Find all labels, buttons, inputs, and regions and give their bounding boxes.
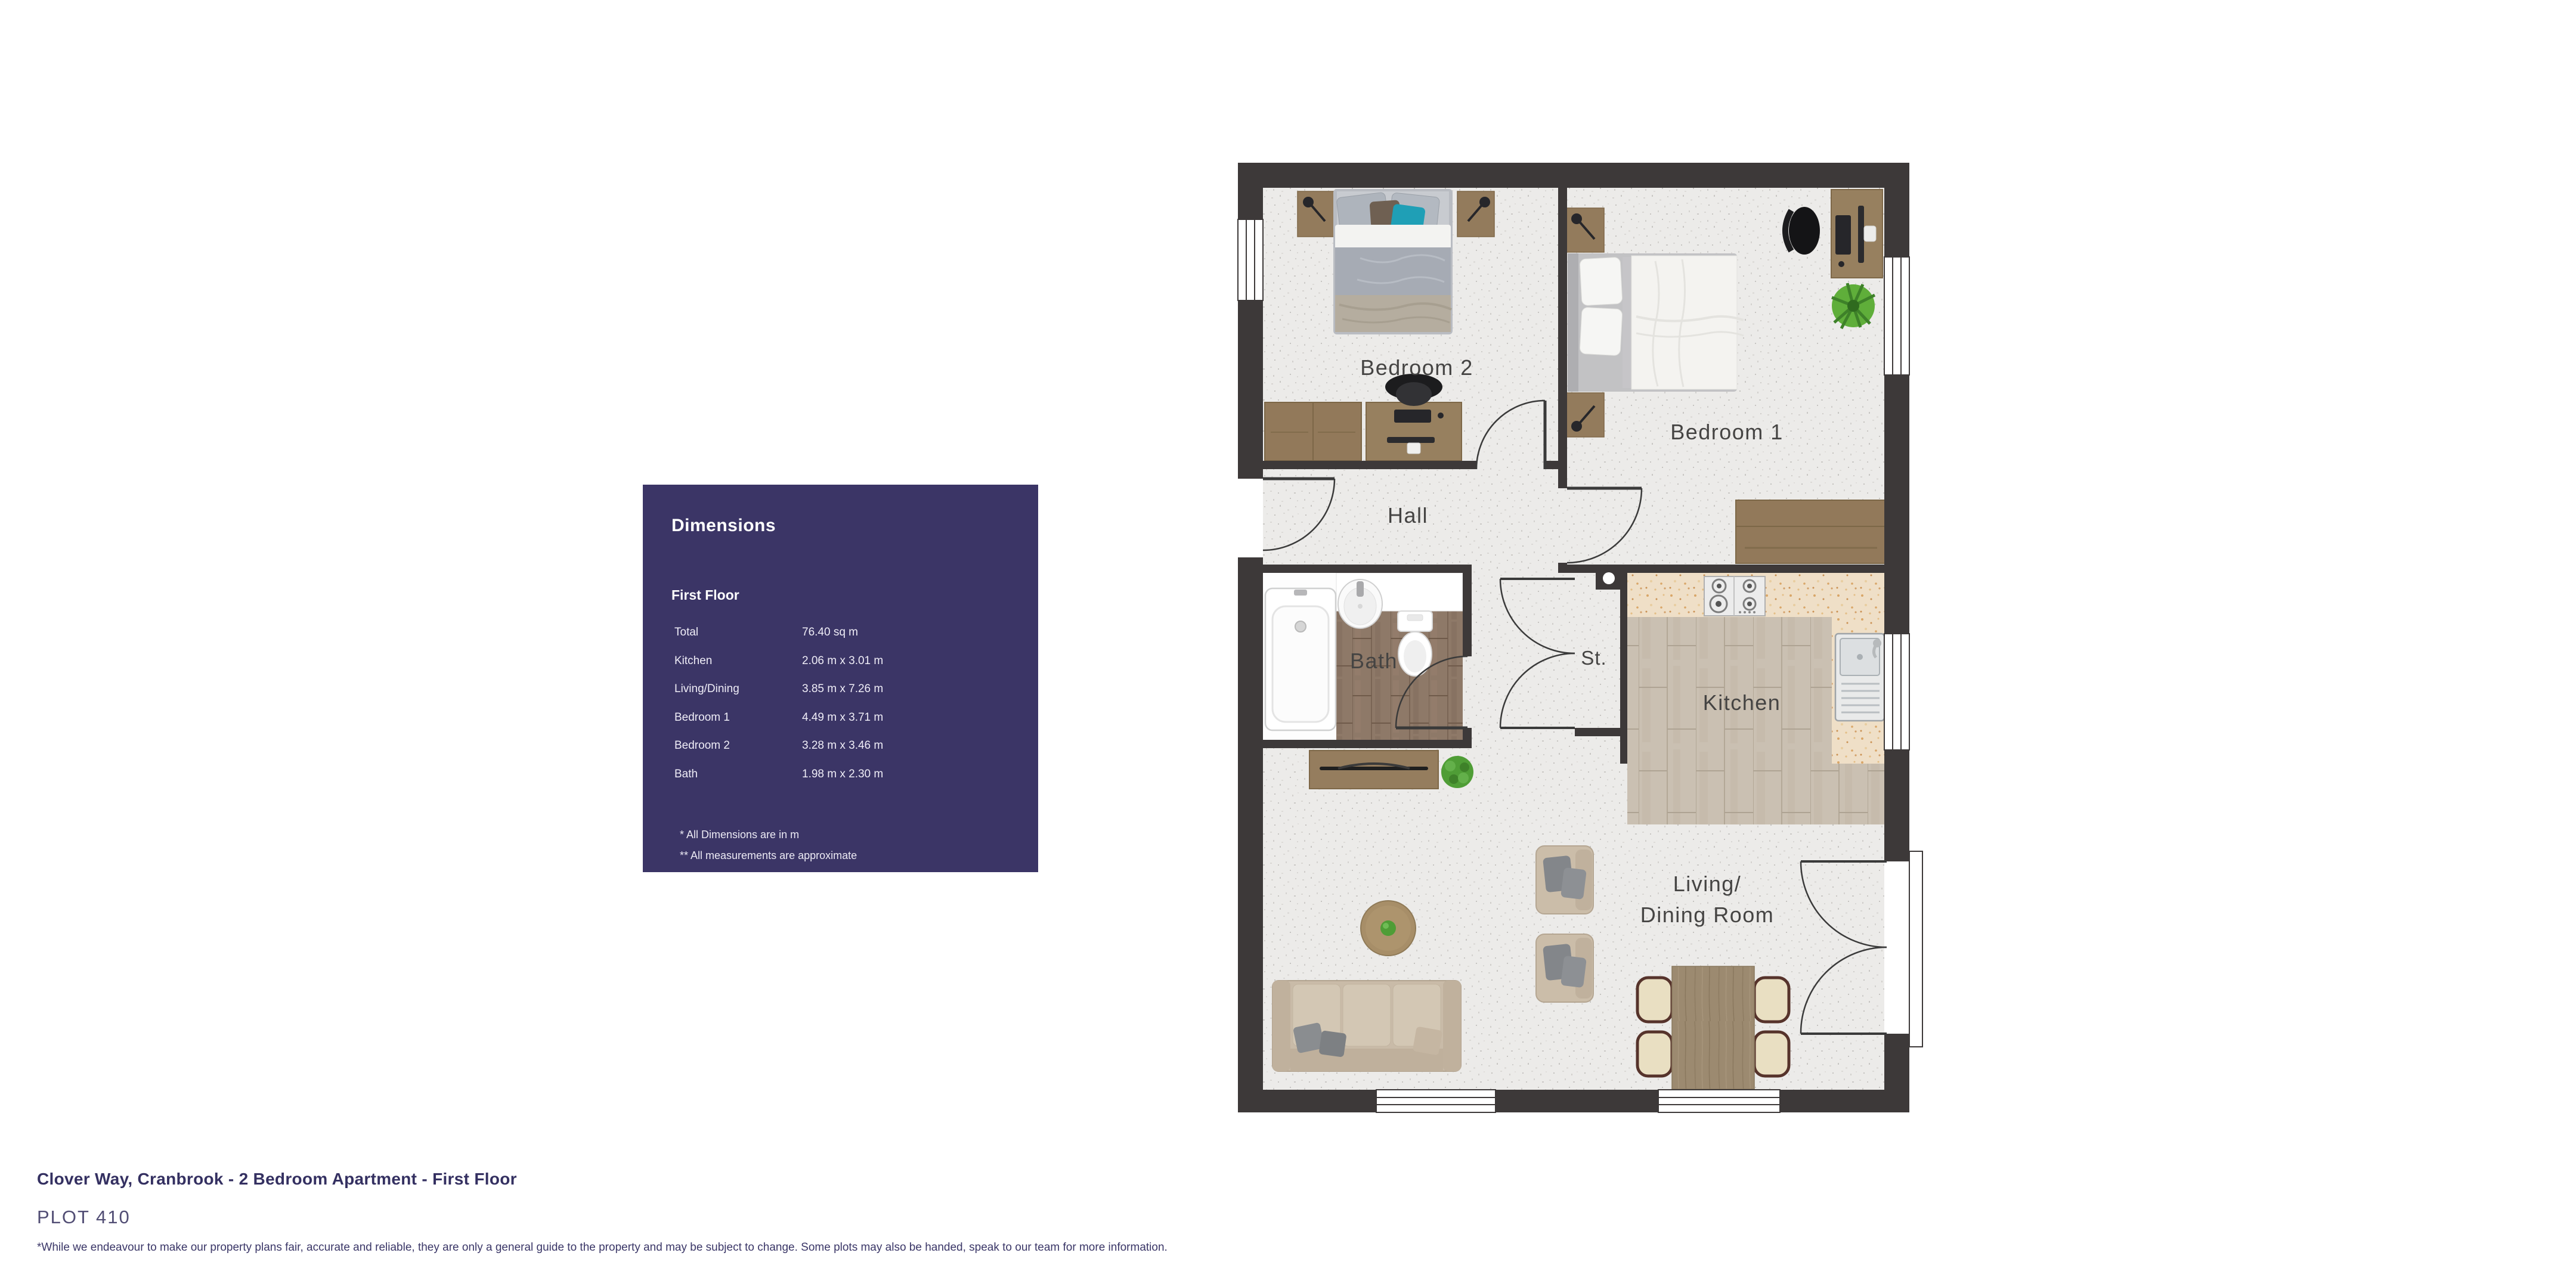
row-label: Bedroom 2	[674, 739, 730, 752]
row-value: 76.40 sq m	[802, 626, 858, 639]
mouse-icon	[1438, 413, 1444, 418]
keyboard-icon	[1835, 215, 1851, 255]
nightstand	[1566, 208, 1604, 252]
footnote-dimensions: * All Dimensions are in m	[680, 829, 799, 841]
kitchen-floor	[1627, 617, 1832, 824]
basin-sink-icon	[1338, 579, 1382, 628]
office-chair-seat	[1396, 382, 1432, 406]
window	[1376, 1090, 1496, 1112]
monitor-icon	[1858, 206, 1864, 263]
nightstand	[1298, 191, 1335, 237]
dimensions-panel: Dimensions First Floor Total 76.40 sq m …	[643, 485, 1038, 872]
row-label: Bedroom 1	[674, 711, 730, 724]
row-label: Living/Dining	[674, 683, 739, 696]
wall-storage-south	[1575, 728, 1627, 736]
faucet-icon	[1294, 590, 1307, 596]
plant-icon	[1380, 920, 1396, 936]
armchair	[1536, 846, 1593, 914]
window	[1238, 219, 1263, 300]
coffee-table	[1361, 901, 1416, 956]
dining-chair	[1754, 978, 1789, 1022]
window	[1658, 1090, 1780, 1112]
cushion-gray	[1561, 867, 1587, 900]
wall-bath-east-upper	[1463, 573, 1472, 656]
row-value: 2.06 m x 3.01 m	[802, 655, 883, 668]
label-kitchen: Kitchen	[1703, 690, 1781, 715]
bed-double	[1568, 253, 1744, 392]
mouse-icon	[1838, 261, 1844, 267]
table-row: Total 76.40 sq m	[643, 620, 1038, 649]
headboard	[1568, 253, 1578, 392]
wardrobe	[1736, 500, 1887, 563]
table-row: Kitchen 2.06 m x 3.01 m	[643, 649, 1038, 677]
footnote-measurements: ** All measurements are approximate	[680, 849, 857, 862]
cushion-gray	[1561, 956, 1587, 988]
dining-table	[1672, 966, 1754, 1089]
dimensions-panel-title: Dimensions	[671, 516, 776, 536]
wall-kitchen-west	[1620, 573, 1627, 764]
label-storage: St.	[1581, 647, 1606, 669]
hob-icon	[1704, 576, 1765, 616]
drain-icon	[1295, 621, 1306, 632]
row-label: Kitchen	[674, 655, 712, 668]
pillow-beige	[1413, 1026, 1443, 1055]
window	[1884, 257, 1909, 375]
label-living-1: Living/	[1673, 872, 1742, 896]
dimensions-table: Total 76.40 sq m Kitchen 2.06 m x 3.01 m…	[643, 620, 1038, 790]
page-title: Clover Way, Cranbrook - 2 Bedroom Apartm…	[37, 1170, 517, 1189]
floor-plan: Bedroom 2 Bedroom 1 Hall Bath St. Kitche…	[1238, 163, 1909, 1112]
wall-left	[1238, 163, 1263, 1112]
pillow	[1580, 257, 1623, 305]
table-row: Bedroom 1 4.49 m x 3.71 m	[643, 705, 1038, 734]
monitor-stand	[1407, 443, 1420, 454]
patio-door-opening	[1884, 861, 1909, 1034]
disclaimer: *While we endeavour to make our property…	[37, 1241, 1168, 1254]
office-chair-icon	[1789, 207, 1820, 255]
dining-chair	[1754, 1032, 1789, 1076]
kitchen-sink-icon	[1835, 634, 1884, 721]
row-value: 1.98 m x 2.30 m	[802, 768, 883, 781]
dimensions-floor-label: First Floor	[671, 587, 739, 603]
wall-column-marker	[1603, 572, 1615, 584]
pillow-gray	[1318, 1030, 1346, 1057]
kitchen-floor-2	[1832, 764, 1887, 824]
sofa	[1272, 981, 1461, 1071]
window	[1884, 634, 1909, 750]
entrance-opening	[1238, 479, 1263, 557]
label-bath: Bath	[1350, 649, 1398, 673]
label-hall: Hall	[1388, 503, 1428, 528]
monitor-stand	[1864, 226, 1876, 241]
wall-bedroom2-south	[1263, 461, 1476, 469]
bathtub-icon	[1265, 588, 1336, 730]
row-label: Total	[674, 626, 698, 639]
label-living-2: Dining Room	[1640, 903, 1775, 927]
table-row: Bath 1.98 m x 2.30 m	[643, 762, 1038, 790]
nightstand	[1457, 191, 1494, 237]
nightstand	[1566, 393, 1604, 437]
dining-chair	[1637, 978, 1672, 1022]
plant-icon	[1441, 756, 1473, 788]
table-row: Bedroom 2 3.28 m x 3.46 m	[643, 733, 1038, 762]
monitor-icon	[1387, 437, 1435, 443]
label-bedroom1: Bedroom 1	[1670, 420, 1784, 444]
row-value: 4.49 m x 3.71 m	[802, 711, 883, 724]
keyboard-icon	[1394, 410, 1431, 423]
wall-stub	[1545, 461, 1558, 469]
row-value: 3.85 m x 7.26 m	[802, 683, 883, 696]
armchair	[1536, 934, 1593, 1002]
pillow	[1580, 307, 1623, 355]
plot-number: PLOT 410	[37, 1207, 131, 1228]
wall-bedroom-divider	[1558, 188, 1567, 488]
toilet-icon	[1398, 611, 1432, 676]
row-label: Bath	[674, 768, 698, 781]
wall-bath-south	[1263, 740, 1472, 748]
bed-double	[1333, 189, 1453, 334]
wall-bottom	[1238, 1090, 1909, 1112]
row-value: 3.28 m x 3.46 m	[802, 739, 883, 752]
faucet-icon	[1357, 581, 1364, 597]
table-row: Living/Dining 3.85 m x 7.26 m	[643, 677, 1038, 705]
bed-throw	[1335, 295, 1451, 332]
patio-door-panel	[1909, 851, 1922, 1047]
wall-bath-north	[1263, 565, 1472, 573]
wall-top	[1238, 163, 1909, 188]
dining-chair	[1637, 1032, 1672, 1076]
label-bedroom2: Bedroom 2	[1360, 355, 1473, 380]
